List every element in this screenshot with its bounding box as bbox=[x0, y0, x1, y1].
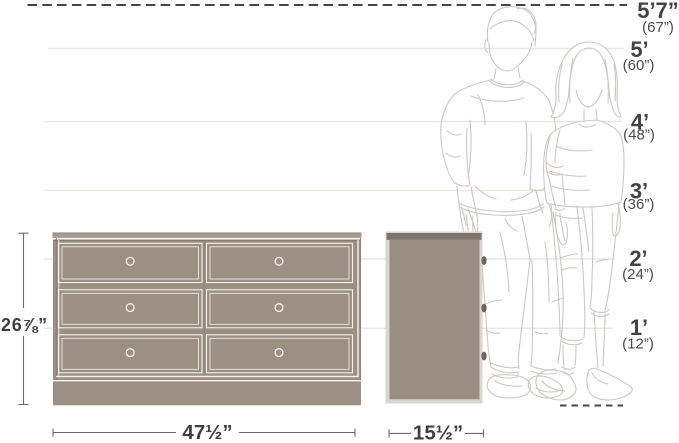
svg-text:(60”): (60”) bbox=[623, 57, 655, 74]
svg-text:47½”: 47½” bbox=[182, 421, 232, 443]
svg-text:26⅞”: 26⅞” bbox=[1, 315, 48, 335]
svg-text:(12”): (12”) bbox=[622, 335, 654, 352]
svg-text:(24”): (24”) bbox=[622, 266, 654, 283]
svg-text:15½”: 15½” bbox=[413, 422, 463, 443]
svg-text:(36”): (36”) bbox=[623, 196, 655, 213]
svg-text:(67”): (67”) bbox=[642, 19, 674, 36]
svg-text:(48”): (48”) bbox=[623, 127, 655, 144]
